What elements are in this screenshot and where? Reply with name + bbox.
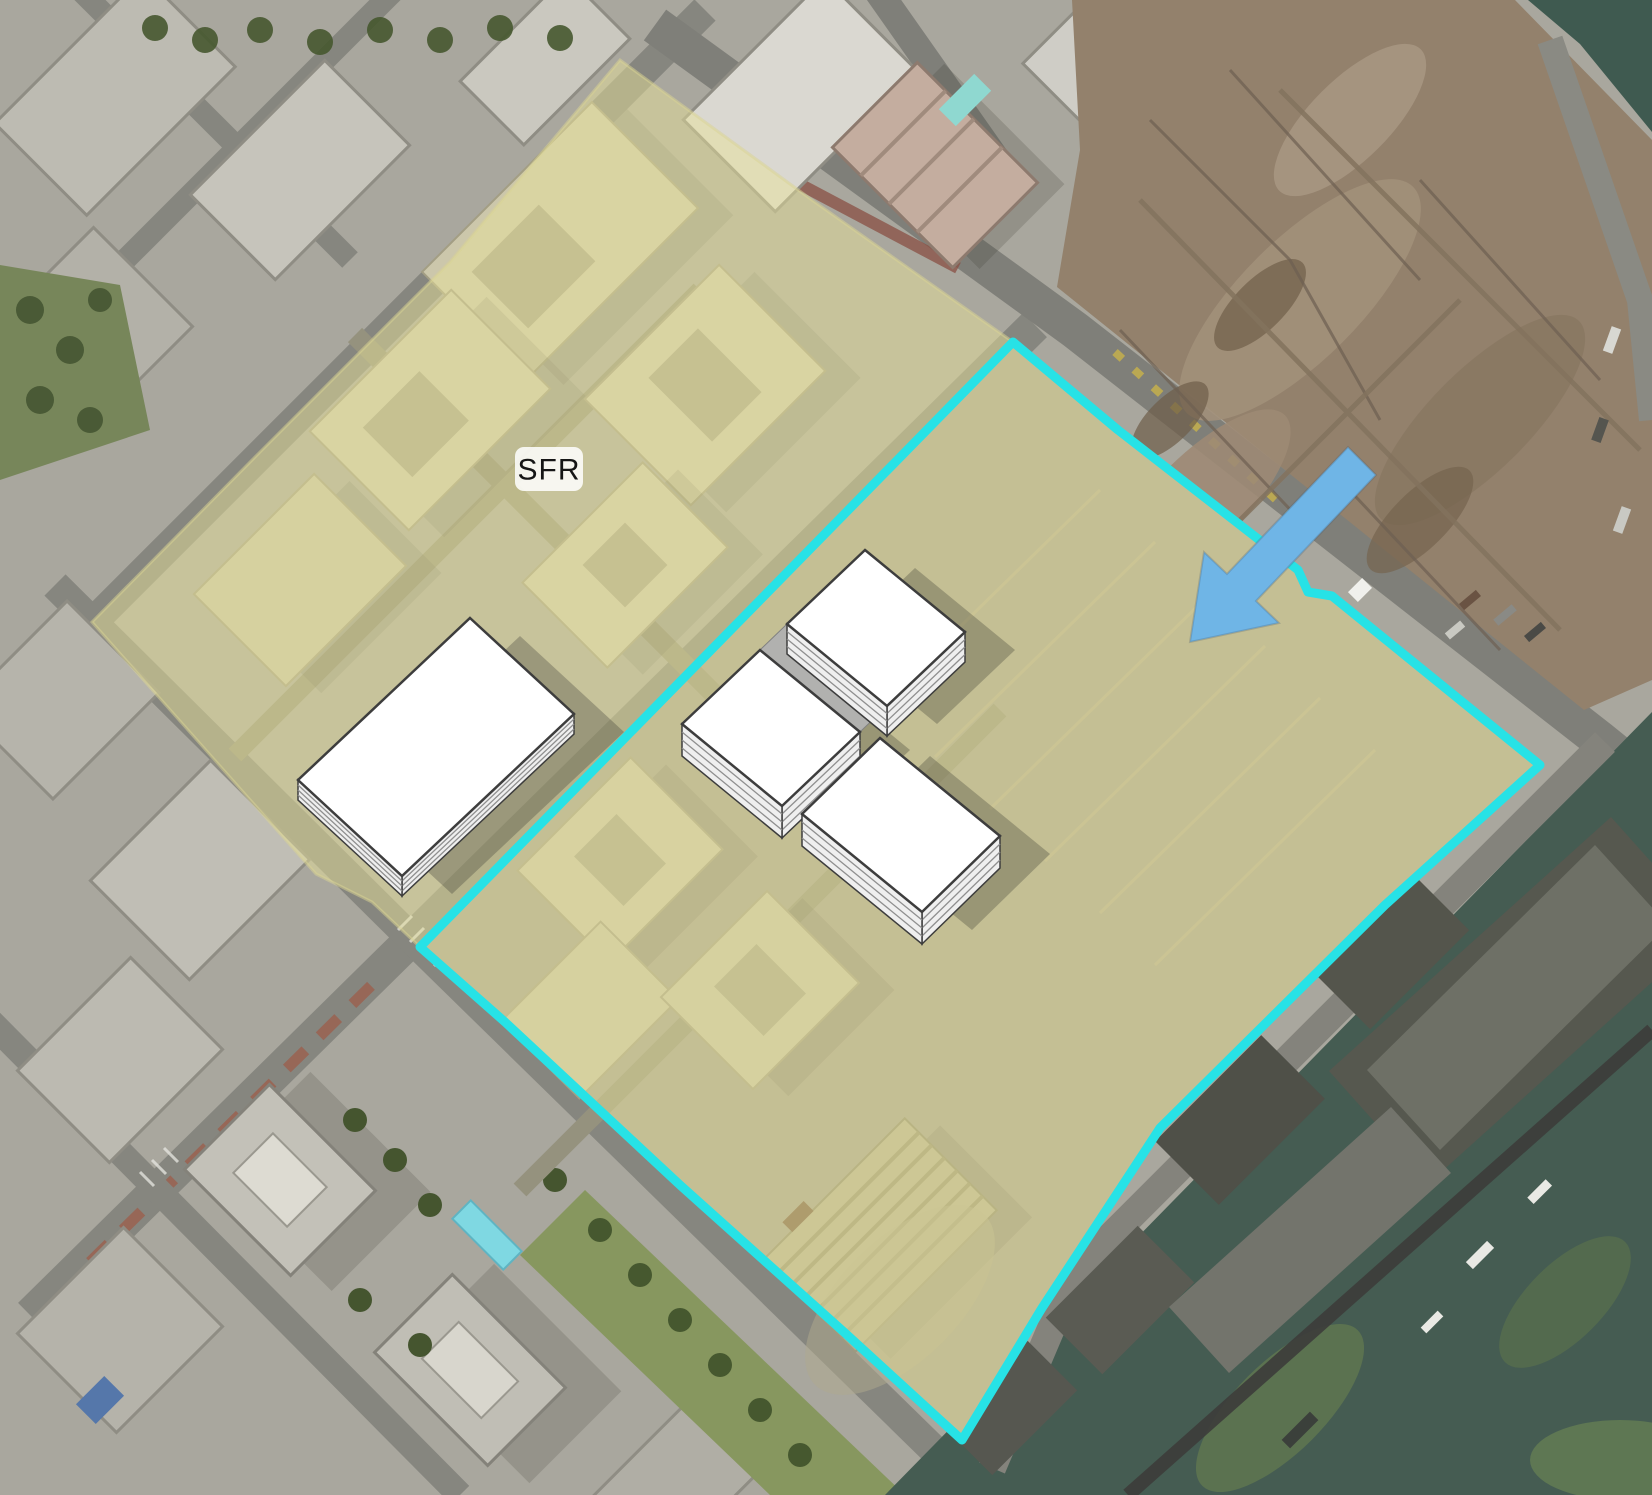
sfr-label: SFR (515, 447, 583, 491)
sfr-label-text: SFR (518, 454, 581, 487)
aerial-map-svg: SFR (0, 0, 1652, 1495)
map-canvas: SFR (0, 0, 1652, 1495)
